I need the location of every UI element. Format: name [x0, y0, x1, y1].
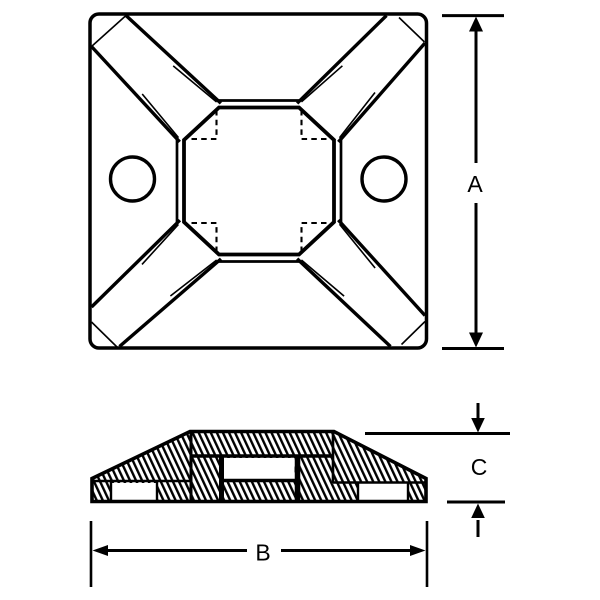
- svg-text:B: B: [255, 540, 270, 566]
- svg-text:C: C: [471, 454, 488, 480]
- svg-text:A: A: [467, 171, 483, 197]
